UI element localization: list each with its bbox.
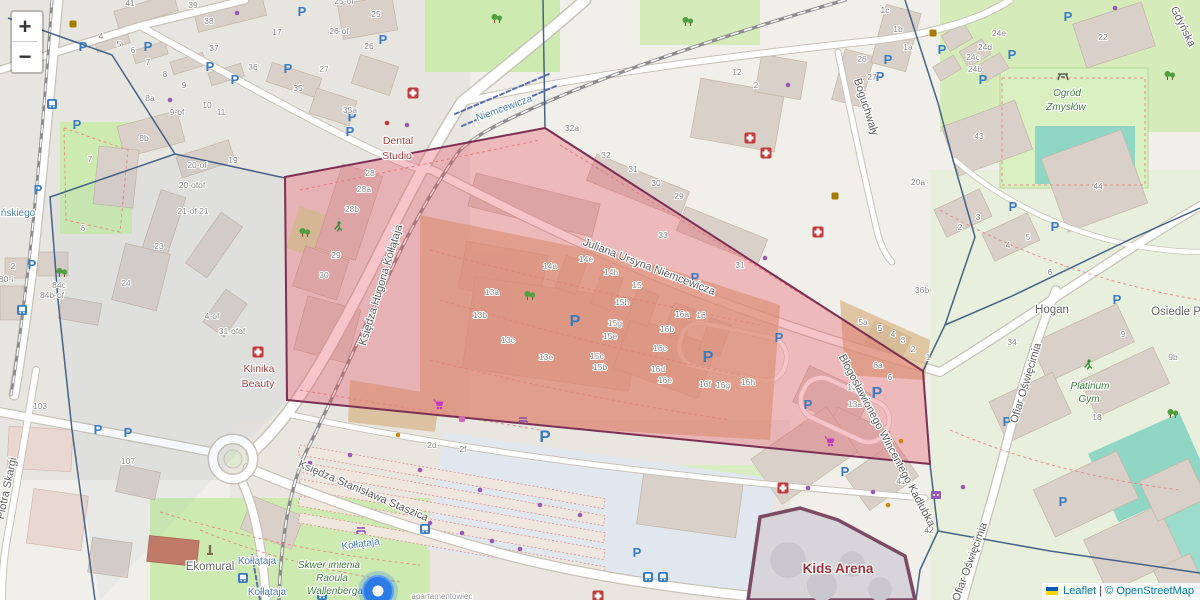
poi-dot (490, 539, 495, 544)
medical-icon (253, 347, 264, 358)
poi-dot (405, 123, 410, 128)
house-number: 24b (968, 64, 982, 74)
house-number: 36b (915, 285, 929, 295)
poi-dot (460, 531, 465, 536)
svg-text:P: P (346, 124, 355, 139)
house-number: 7 (146, 57, 151, 67)
house-number: 14h (604, 267, 618, 277)
svg-text:P: P (876, 69, 885, 84)
poi-dot (786, 83, 791, 88)
place-label: Skwer imienia (298, 560, 361, 571)
place-label: Zmysłów (1045, 102, 1086, 113)
house-number: 26 (364, 41, 374, 51)
bus-icon (420, 524, 430, 534)
house-number: 2 (11, 261, 16, 271)
place-label: Dental (383, 135, 413, 147)
bus-icon (238, 573, 248, 583)
parking-icon: P (284, 61, 293, 76)
parking-icon: P (1059, 494, 1068, 509)
house-number: 18 (1092, 412, 1102, 422)
amber-poi-icon (930, 30, 937, 37)
poi-dot (961, 485, 966, 490)
house-number: 8 (163, 69, 168, 79)
svg-text:P: P (570, 313, 581, 330)
house-number: 14e (579, 254, 593, 264)
parking-icon: P (841, 464, 850, 479)
house-number: 30 (319, 270, 329, 280)
parking-icon: P (28, 257, 37, 272)
house-number: 44 (1093, 181, 1103, 191)
bus-icon (47, 99, 57, 109)
parking-icon: P (884, 52, 893, 67)
house-number: 37 (209, 43, 219, 53)
svg-text:P: P (34, 182, 43, 197)
place-label: Beauty (242, 378, 275, 390)
poi-dot (763, 256, 768, 261)
poi-dot (538, 503, 543, 508)
leaflet-link[interactable]: Leaflet (1063, 585, 1096, 597)
parking-icon: P (144, 39, 153, 54)
house-number: 32a (565, 123, 579, 133)
parking-icon: P (633, 545, 642, 560)
house-number: 20-ofof (179, 180, 206, 190)
parking-icon: P (876, 69, 885, 84)
house-number: 2 (958, 222, 963, 232)
house-number: 24c (966, 52, 980, 62)
medical-icon (593, 591, 604, 600)
house-number: 84b-of (40, 290, 65, 300)
house-number: 16g (716, 380, 730, 390)
house-number: 9 (182, 80, 187, 90)
poi-dot (578, 513, 583, 518)
house-number: 7 (88, 154, 93, 164)
svg-text:P: P (775, 330, 784, 345)
svg-text:P: P (379, 32, 388, 47)
house-number: 11 (217, 107, 226, 117)
place-label: Klinika (244, 363, 275, 375)
bus-icon (658, 572, 668, 582)
poi-dot (899, 439, 904, 444)
house-number: 23 (154, 241, 164, 251)
svg-text:P: P (1059, 494, 1068, 509)
parking-icon: P (206, 59, 215, 74)
house-number: 15e (603, 331, 617, 341)
house-number: 12 (732, 67, 742, 77)
place-label: Gym (1078, 394, 1099, 405)
house-number: 4 (1006, 240, 1011, 250)
house-number: 29 (331, 250, 341, 260)
svg-text:P: P (284, 61, 293, 76)
house-number: 31-ofof (219, 326, 246, 336)
house-number: 24 (121, 278, 131, 288)
parking-icon: P (346, 124, 355, 139)
house-number: 15c (590, 351, 604, 361)
house-number: 22 (1098, 32, 1108, 42)
attribution-separator: | (1096, 585, 1105, 597)
house-number: 25 (371, 9, 381, 19)
house-number: 103 (33, 401, 47, 411)
parking-icon: P (298, 4, 307, 19)
poi-dot (428, 521, 433, 526)
amber-poi-icon (832, 193, 839, 200)
house-number: 1b (893, 24, 903, 34)
house-number: 41 (125, 0, 135, 8)
house-number: 20-of (187, 160, 207, 170)
parking-icon: P (34, 182, 43, 197)
svg-text:P: P (94, 422, 103, 437)
house-number: 1c (881, 5, 891, 15)
place-label: Ogród (1053, 88, 1081, 99)
svg-text:P: P (79, 39, 88, 54)
zoom-control: + − (10, 10, 44, 74)
parking-icon: P (1064, 9, 1073, 24)
parking-icon: P (872, 385, 883, 402)
svg-text:P: P (298, 4, 307, 19)
house-number: 3 (901, 335, 906, 345)
poi-dot (518, 547, 523, 552)
theatre-icon (931, 491, 941, 499)
parking-icon: P (73, 117, 82, 132)
house-number: 2 (754, 80, 759, 90)
house-number: 16a (675, 309, 689, 319)
house-number: 29 (674, 191, 684, 201)
house-number: 9 (1121, 329, 1126, 339)
house-number: 2f (459, 444, 467, 454)
parking-icon: P (124, 425, 133, 440)
svg-text:P: P (1064, 9, 1073, 24)
parking-icon: P (79, 39, 88, 54)
house-number: 6 (1048, 267, 1053, 277)
house-number: 32 (601, 150, 611, 160)
medical-icon (813, 227, 824, 238)
svg-text:P: P (231, 72, 240, 87)
place-label: Ekomural (186, 561, 235, 573)
parking-icon: P (94, 422, 103, 437)
poi-dot (418, 468, 423, 473)
svg-text:P: P (872, 385, 883, 402)
poi-dot (1113, 6, 1118, 11)
medical-icon (745, 133, 756, 144)
svg-text:P: P (1009, 199, 1018, 214)
house-number: 17 (272, 27, 282, 37)
svg-text:P: P (1008, 47, 1017, 62)
house-number: 9-of (170, 107, 185, 117)
house-number: 13a (485, 287, 499, 297)
house-number: 36 (248, 62, 258, 72)
house-number: 16h (741, 377, 755, 387)
house-number: 5 (878, 323, 883, 333)
zoom-out-button[interactable]: − (12, 42, 38, 72)
house-number: 16 (696, 310, 706, 320)
house-number: 15h (615, 297, 629, 307)
house-number: 43 (974, 131, 984, 141)
house-number: 3 (976, 212, 981, 222)
parking-icon: P (775, 330, 784, 345)
house-number: 4-of (205, 311, 220, 321)
house-number: 31 (628, 164, 638, 174)
poi-dot (385, 121, 390, 126)
house-number: 4 (99, 31, 104, 41)
house-number: 24e (992, 28, 1006, 38)
parking-icon: P (539, 427, 550, 446)
place-label: Hogan (1035, 304, 1069, 316)
house-number: 2 (911, 344, 916, 354)
bus-icon (643, 572, 653, 582)
house-number: 15 (632, 280, 642, 290)
parking-icon: P (1009, 199, 1018, 214)
svg-text:P: P (124, 425, 133, 440)
house-number: 38 (204, 16, 214, 26)
house-number: 13b (473, 310, 487, 320)
house-number: 19 (228, 155, 238, 165)
house-number: 26 (857, 54, 867, 64)
poi-dot (235, 11, 240, 16)
svg-text:P: P (938, 42, 947, 57)
place-label: Wallenberga (307, 586, 363, 597)
house-number: 28a (357, 184, 371, 194)
attribution-bar: Leaflet | © OpenStreetMap (1042, 583, 1200, 600)
place-label: Studio (382, 150, 412, 162)
house-number: 30 (651, 178, 661, 188)
house-number: 84c (52, 280, 66, 290)
medical-icon (778, 483, 789, 494)
house-number: 27 (319, 64, 329, 74)
house-number: 16d (651, 364, 665, 374)
parking-icon: P (703, 349, 714, 366)
poi-dot (806, 486, 811, 491)
svg-text:P: P (703, 349, 714, 366)
bus-icon (17, 305, 27, 315)
transit-stop-label: Kołłątaja (238, 556, 277, 567)
place-label: Raoula (316, 573, 348, 584)
poi-dot (348, 453, 353, 458)
svg-text:P: P (1113, 292, 1122, 307)
place-label: Kids Arena (803, 561, 874, 576)
house-number: 2d (427, 440, 437, 450)
house-number: 25-of (334, 0, 354, 6)
place-label: Osiedle P (1151, 306, 1200, 318)
parking-icon: P (1113, 292, 1122, 307)
svg-text:P: P (144, 39, 153, 54)
house-number: 13e (539, 352, 553, 362)
svg-text:P: P (841, 464, 850, 479)
house-number: 28b (345, 204, 359, 214)
svg-text:P: P (979, 72, 988, 87)
transit-stop-label: ńskiego (1, 208, 36, 219)
house-number: 26-of (329, 26, 349, 36)
house-number: 24d (978, 42, 992, 52)
poi-dot (478, 488, 483, 493)
svg-text:P: P (884, 52, 893, 67)
house-number: 39 (188, 0, 198, 10)
poi-dot (886, 503, 891, 508)
svg-text:P: P (73, 117, 82, 132)
ukraine-flag-icon (1046, 587, 1058, 595)
house-number: 28 (365, 168, 375, 178)
house-number: 14a (543, 261, 557, 271)
transit-stop-label: Kołłątaja (248, 587, 287, 598)
svg-text:P: P (633, 545, 642, 560)
poi-dot (871, 490, 876, 495)
house-number: 6 (81, 223, 86, 233)
svg-text:P: P (28, 257, 37, 272)
map-canvas[interactable]: PPPPPPPPPPPPPPPPPPPPPPPPPPPPPPPPPP 41393… (0, 0, 1200, 600)
parking-icon: P (938, 42, 947, 57)
svg-text:P: P (539, 427, 550, 446)
amber-poi-icon (70, 21, 77, 28)
parking-icon: P (804, 397, 813, 412)
house-number: 5a (858, 317, 868, 327)
house-number: 27 (867, 72, 877, 82)
house-number: 15b (593, 362, 607, 372)
poi-dot (168, 98, 173, 103)
house-number: 6 (888, 372, 893, 382)
house-number: 8a (145, 93, 155, 103)
openstreetmap-link[interactable]: © OpenStreetMap (1105, 585, 1194, 597)
place-label: Platinum (1071, 381, 1110, 392)
poi-dot (396, 433, 401, 438)
map-tiles: PPPPPPPPPPPPPPPPPPPPPPPPPPPPPPPPPP 41393… (0, 0, 1200, 600)
medical-icon (761, 148, 772, 159)
house-number: 6a (873, 360, 883, 370)
house-number: 107 (121, 456, 135, 466)
house-number: 9b (1168, 352, 1178, 362)
house-number: 16c (653, 343, 667, 353)
parking-icon: P (1008, 47, 1017, 62)
house-number: 1 (926, 352, 931, 362)
parking-icon: P (570, 313, 581, 330)
svg-text:P: P (1051, 219, 1060, 234)
zoom-in-button[interactable]: + (12, 12, 38, 42)
house-number: 80-i (0, 274, 13, 284)
parking-icon: P (379, 32, 388, 47)
house-number: 20a (911, 177, 925, 187)
house-number: 15g (608, 318, 622, 328)
house-number: 21-of 21 (177, 206, 208, 216)
house-number: 31 (735, 260, 745, 270)
house-number: 4 (891, 329, 896, 339)
house-number: 35 (293, 83, 303, 93)
place-label: apartamentowiec (412, 592, 473, 600)
medical-icon (408, 88, 419, 99)
parking-icon: P (231, 72, 240, 87)
house-number: 33 (658, 230, 668, 240)
house-number: 35a (343, 105, 357, 115)
parking-icon: P (979, 72, 988, 87)
house-number: 5 (1026, 232, 1031, 242)
house-number: 13c (501, 335, 515, 345)
svg-text:P: P (804, 397, 813, 412)
house-number: 6 (131, 45, 136, 55)
pink-poi-icon (459, 416, 465, 422)
house-number: 16b (660, 324, 674, 334)
house-number: 5 (117, 39, 122, 49)
parking-icon: P (1051, 219, 1060, 234)
house-number: 8b (139, 133, 149, 143)
house-number: 16e (658, 375, 672, 385)
house-number: 1a (903, 42, 913, 52)
house-number: 34 (1007, 337, 1017, 347)
house-number: 10 (202, 100, 212, 110)
svg-text:P: P (206, 59, 215, 74)
house-number: 16f (699, 379, 711, 389)
